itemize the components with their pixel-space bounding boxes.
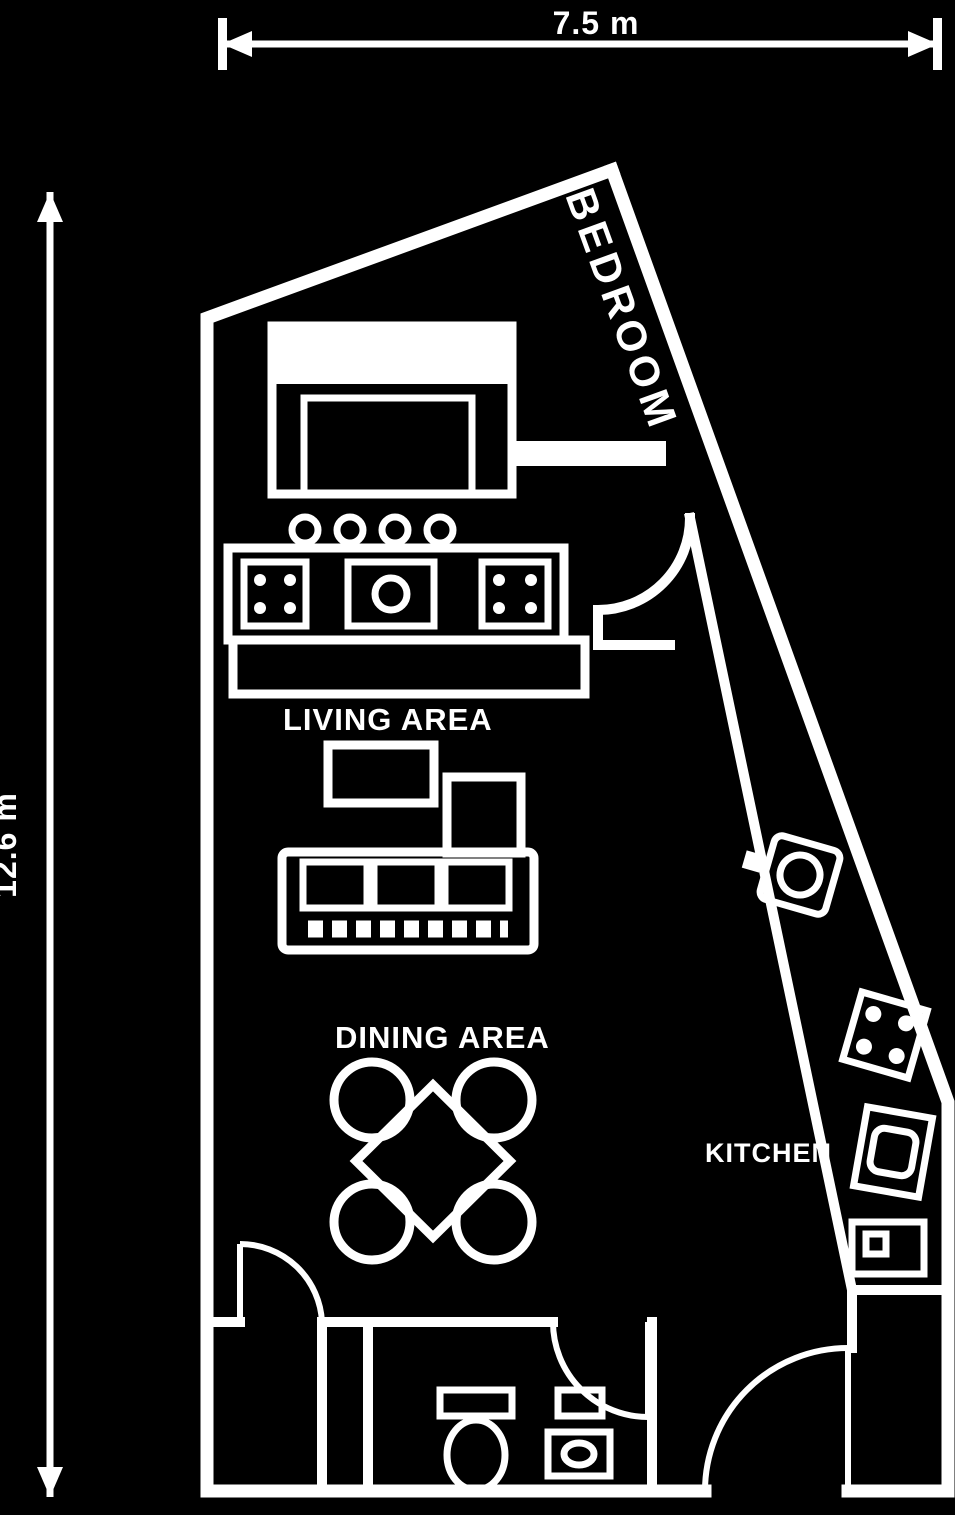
left-dimension-label: 12.6 m [0,792,23,898]
top-dimension-label: 7.5 m [553,5,640,41]
kitchen-label: KITCHEN [705,1138,832,1168]
background [0,0,955,1515]
dining-area-label: DINING AREA [335,1020,550,1055]
wall-shelf [514,441,666,466]
floor-plan-page: { "colors": { "background": "#000000", "… [0,0,955,1515]
floor-plan-svg: 7.5 m 12.6 m [0,0,955,1515]
living-area-label: LIVING AREA [283,702,493,737]
